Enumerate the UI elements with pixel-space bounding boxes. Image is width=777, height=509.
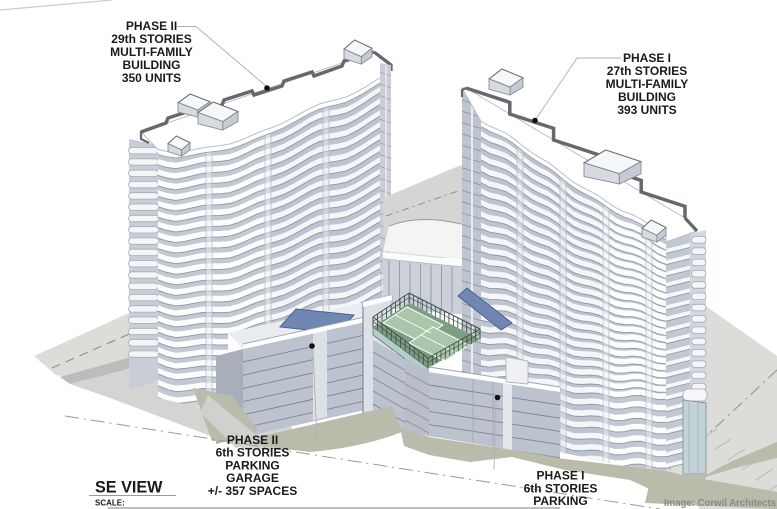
svg-text:+/- 357 SPACES: +/- 357 SPACES	[208, 484, 297, 498]
svg-text:PHASE II: PHASE II	[126, 19, 177, 33]
svg-text:PARKING: PARKING	[533, 494, 587, 508]
svg-text:MULTI-FAMILY: MULTI-FAMILY	[110, 45, 193, 59]
svg-text:PHASE I: PHASE I	[623, 51, 671, 65]
svg-text:29th STORIES: 29th STORIES	[111, 32, 191, 46]
svg-text:27th STORIES: 27th STORIES	[607, 64, 687, 78]
svg-text:BUILDING: BUILDING	[618, 90, 676, 104]
svg-text:SCALE:: SCALE:	[95, 499, 125, 508]
svg-text:BUILDING: BUILDING	[123, 58, 181, 72]
svg-text:SE VIEW: SE VIEW	[95, 479, 163, 497]
svg-text:393 UNITS: 393 UNITS	[617, 103, 676, 117]
svg-text:MULTI-FAMILY: MULTI-FAMILY	[606, 77, 689, 91]
svg-text:350 UNITS: 350 UNITS	[122, 71, 181, 85]
svg-text:Image: Corwil Architects: Image: Corwil Architects	[664, 498, 777, 509]
